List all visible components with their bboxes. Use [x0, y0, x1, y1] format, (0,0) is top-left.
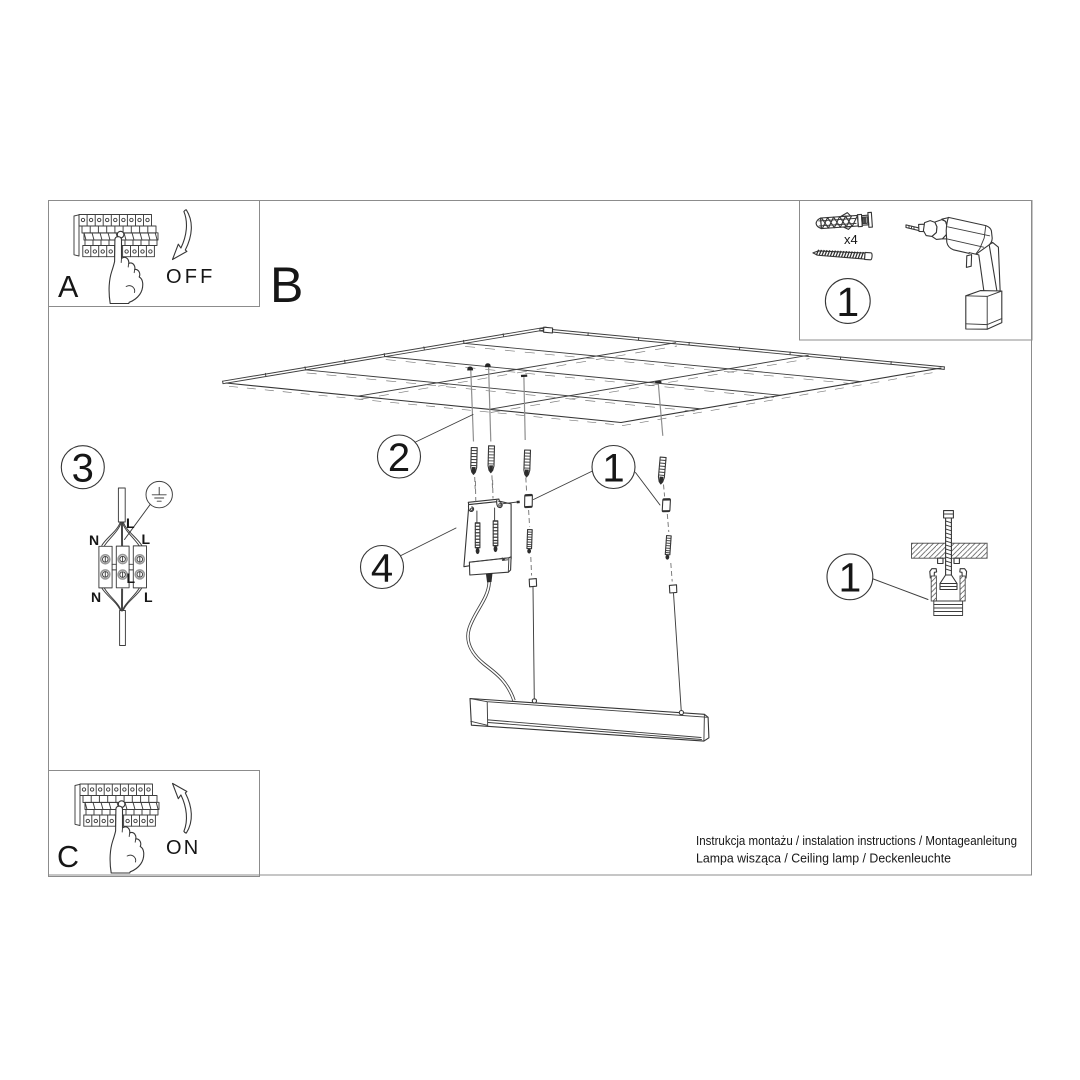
svg-text:4: 4	[371, 547, 393, 591]
svg-text:OFF: OFF	[166, 266, 216, 288]
svg-text:Lampa wisząca / Ceiling lamp /: Lampa wisząca / Ceiling lamp / Deckenleu…	[696, 851, 951, 866]
svg-text:1: 1	[838, 555, 861, 601]
svg-text:L: L	[142, 531, 151, 547]
svg-text:1: 1	[836, 279, 859, 325]
svg-text:N: N	[91, 589, 101, 605]
svg-text:L: L	[127, 570, 136, 586]
svg-text:Instrukcja montażu / instalati: Instrukcja montażu / instalation instruc…	[696, 833, 1017, 848]
svg-text:B: B	[270, 257, 303, 313]
svg-text:ON: ON	[166, 837, 200, 859]
svg-text:A: A	[58, 270, 79, 304]
svg-text:C: C	[57, 840, 79, 874]
svg-text:L: L	[126, 515, 135, 531]
svg-text:N: N	[89, 532, 99, 548]
svg-text:3: 3	[72, 447, 94, 491]
svg-text:2: 2	[388, 436, 410, 480]
svg-text:x4: x4	[844, 232, 858, 247]
svg-text:L: L	[144, 589, 153, 605]
svg-text:1: 1	[602, 447, 624, 491]
